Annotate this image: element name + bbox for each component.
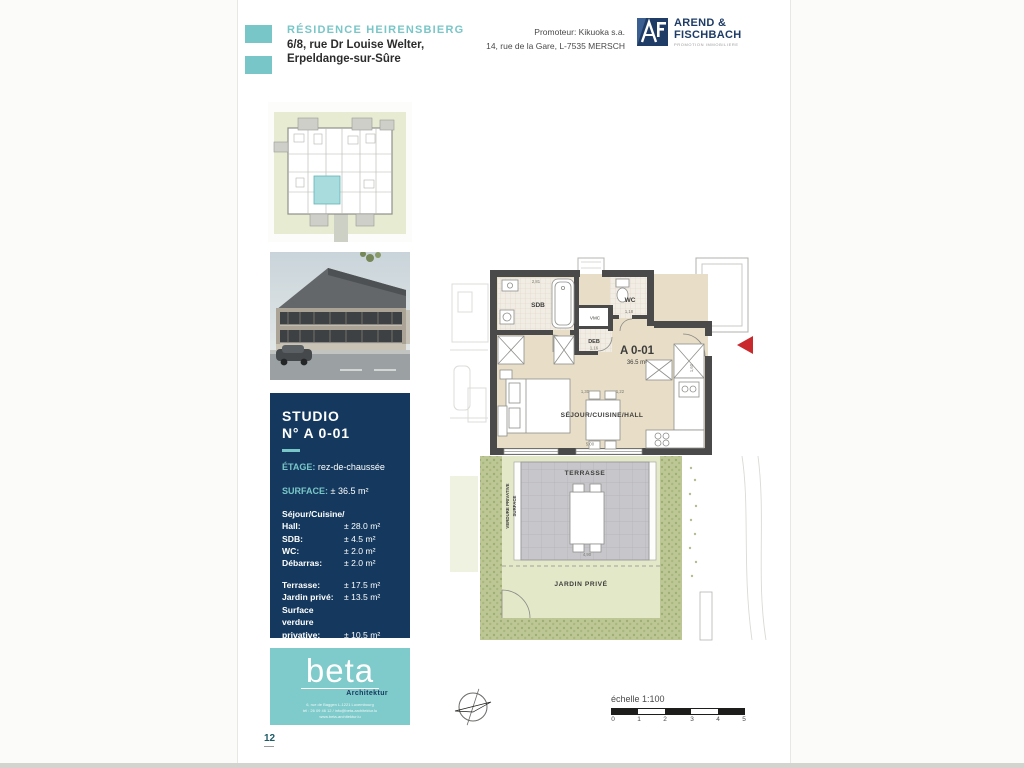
etage-row: ÉTAGE: rez-de-chaussée: [282, 462, 398, 472]
label-verdure-2: VERDURE PRIVATIVE: [505, 483, 510, 528]
teal-divider: [282, 449, 300, 452]
hedge-left: [480, 456, 502, 640]
page-number: 12: [264, 733, 275, 744]
surface-label: SURFACE:: [282, 486, 328, 496]
residence-title: RÉSIDENCE HEIRENSBIERG: [287, 24, 464, 36]
neighbour-plan-faint: [450, 284, 488, 422]
pillow: [509, 408, 520, 428]
beta-subtitle: Architektur: [292, 690, 388, 697]
room-row: Débarras: ± 2.0 m²: [282, 557, 398, 569]
room-surface-list: Séjour/Cuisine/ Hall: ± 28.0 m² SDB: ± 4…: [282, 508, 398, 642]
outdoor-chair: [573, 544, 584, 552]
arend-fischbach-logo: AREND & FISCHBACH PROMOTION IMMOBILIERE: [637, 18, 741, 47]
unit-info-box: STUDIO N° A 0-01 ÉTAGE: rez-de-chaussée …: [270, 393, 410, 638]
room-row: SDB: ± 4.5 m²: [282, 533, 398, 545]
label-wc: WC: [625, 297, 636, 304]
unit-type: STUDIO: [282, 408, 398, 425]
outdoor-table: [570, 492, 604, 544]
promoter-line-1: Promoteur: Kikuoka s.a.: [470, 26, 625, 40]
label-vmc: VMC: [590, 316, 601, 321]
scale-bar-block: échelle 1:100 0 1 2 3 4 5: [611, 694, 761, 725]
dim-hall-left: 1,30: [581, 389, 590, 394]
hedge-right: [660, 456, 682, 640]
dim-room: 5,00: [586, 442, 595, 447]
outdoor-chair: [590, 484, 601, 492]
address-line-1: 6/8, rue Dr Louise Welter,: [287, 38, 424, 52]
dim-terrace: 4,90: [583, 552, 592, 557]
room-row: Surface verdure privative: ± 10.5 m²: [282, 604, 398, 641]
unit-number: N° A 0-01: [282, 425, 398, 442]
nightstand: [500, 370, 512, 379]
unit-title: STUDIO N° A 0-01: [282, 408, 398, 442]
logo-name-line-2: FISCHBACH: [674, 30, 741, 42]
architect-logo-box: beta Architektur 6, rue de Baggen L-1221…: [270, 648, 410, 725]
neighbour-garden-faint: [450, 476, 478, 572]
chair: [605, 441, 616, 449]
room-value: ± 28.0 m²: [344, 520, 398, 532]
label-sdb: SDB: [531, 302, 545, 309]
outdoor-chair: [590, 544, 601, 552]
overview-plan-thumbnail: [268, 102, 412, 242]
beta-contact-lines: 6, rue de Baggen L-1221 Luxembourg tél :…: [270, 702, 410, 720]
beta-wordmark: beta: [270, 654, 410, 687]
af-monogram-icon: [637, 18, 668, 46]
brochure-page: RÉSIDENCE HEIRENSBIERG 6/8, rue Dr Louis…: [0, 0, 1024, 768]
surface-row: SURFACE: ± 36.5 m²: [282, 486, 398, 496]
dim-wc: 1,18: [625, 309, 634, 314]
entrance-arrow-icon: [737, 336, 753, 354]
dim-sdb: 2,81: [532, 279, 541, 284]
highlighted-unit: [314, 176, 340, 204]
address-line-2: Erpeldange-sur-Sûre: [287, 52, 424, 66]
etage-label: ÉTAGE:: [282, 462, 315, 472]
chair: [605, 391, 616, 399]
outdoor-chair: [573, 484, 584, 492]
header-teal-square-1: [245, 25, 272, 43]
label-terrasse: TERRASSE: [565, 470, 606, 477]
label-sejour: SÉJOUR/CUISINE/HALL: [561, 410, 644, 419]
washing-machine: [500, 310, 514, 324]
side-path: [700, 592, 712, 640]
label-deb: DEB: [588, 339, 600, 345]
chair: [589, 391, 600, 399]
pillow: [509, 383, 520, 403]
vegetation-dots: [689, 467, 697, 577]
logo-text-block: AREND & FISCHBACH PROMOTION IMMOBILIERE: [674, 18, 741, 47]
floor-plan: SDB WC VMC DEB A 0-01 36.5 m² SÉJOUR/CUI…: [450, 248, 790, 648]
label-jardin: JARDIN PRIVÉ: [554, 579, 607, 588]
scale-label: échelle 1:100: [611, 694, 761, 704]
room-row: Jardin privé: ± 13.5 m²: [282, 591, 398, 603]
scale-ticks: 0 1 2 3 4 5: [611, 715, 745, 725]
page-bottom-edge: [0, 763, 1024, 768]
logo-name-line-1: AREND &: [674, 18, 741, 30]
dim-hall-right: 1,22: [616, 389, 625, 394]
label-unit-area: 36.5 m²: [627, 360, 647, 366]
promoter-line-2: 14, rue de la Gare, L-7535 MERSCH: [470, 40, 625, 54]
page-number-rule: [264, 746, 274, 747]
hedge-bottom: [480, 618, 682, 640]
sofa: [498, 406, 507, 436]
surface-value: ± 36.5 m²: [331, 486, 369, 496]
dim-deb: 1,16: [590, 346, 599, 351]
sink: [502, 280, 518, 291]
toilet-tank: [616, 279, 629, 287]
kitchen-counter-bottom: [646, 430, 704, 448]
room-row: Terrasse: ± 17.5 m²: [282, 579, 398, 591]
promoter-block: Promoteur: Kikuoka s.a. 14, rue de la Ga…: [470, 26, 625, 53]
label-verdure-1: SURFACE: [512, 495, 517, 516]
label-unit: A 0-01: [620, 345, 655, 357]
etage-value: rez-de-chaussée: [318, 462, 385, 472]
residence-address: 6/8, rue Dr Louise Welter, Erpeldange-su…: [287, 38, 424, 67]
terrace-furniture: [570, 484, 604, 552]
terrain-contours: [742, 456, 766, 640]
scale-bar: [611, 708, 745, 715]
dining-table: [586, 400, 620, 440]
building-photo: [270, 252, 410, 380]
room-row: WC: ± 2.0 m²: [282, 545, 398, 557]
dim-door: 1,60: [689, 363, 694, 372]
north-arrow-compass-icon: [450, 684, 496, 730]
room-label: Séjour/Cuisine/: [282, 509, 345, 519]
terrace-side-wall: [649, 462, 656, 560]
room-row: Séjour/Cuisine/ Hall: ± 28.0 m²: [282, 508, 398, 533]
room-label-2: Hall:: [282, 521, 301, 531]
logo-tagline: PROMOTION IMMOBILIERE: [674, 43, 741, 47]
header-teal-square-2: [245, 56, 272, 74]
